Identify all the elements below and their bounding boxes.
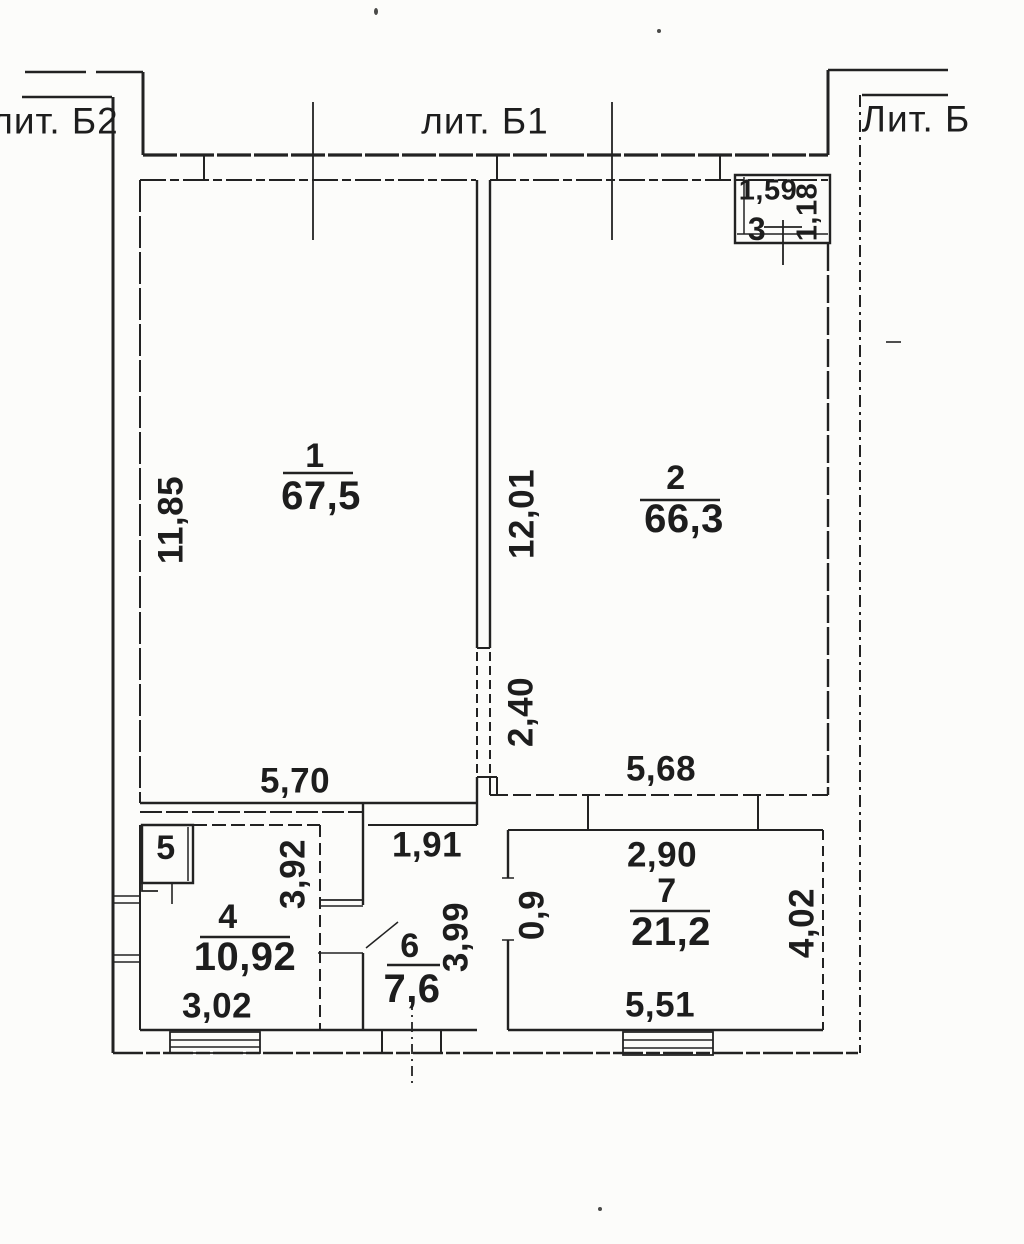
steps-right xyxy=(623,1032,713,1055)
room1-bottom-wall xyxy=(140,803,477,825)
dim-room4-height: 3,92 xyxy=(276,839,311,909)
left-wall-inner xyxy=(113,180,140,1030)
room4-area: 10,92 xyxy=(194,937,297,977)
dim-room7-top: 2,90 xyxy=(627,838,697,873)
label-lit-b: Лит. Б xyxy=(862,101,971,138)
dim-room2-width: 5,68 xyxy=(626,752,696,787)
dim-room2-lower: 2,40 xyxy=(504,677,539,747)
dim-room6-width: 1,91 xyxy=(392,828,462,863)
scan-speckle xyxy=(657,29,661,33)
dim-room1-width: 5,70 xyxy=(260,764,330,799)
room2-area: 66,3 xyxy=(644,499,724,539)
divider-room1-room2 xyxy=(477,180,497,825)
room1-area: 67,5 xyxy=(281,476,361,516)
room6-number: 6 xyxy=(400,929,419,963)
dim-room1-height: 11,85 xyxy=(154,476,189,564)
dim-room7-bottom: 5,51 xyxy=(625,988,695,1023)
room5-number: 5 xyxy=(156,831,175,865)
dim-room4-width: 3,02 xyxy=(182,989,252,1024)
dim-room3-height: 1,18 xyxy=(794,183,823,241)
dim-room3-width: 1,59 xyxy=(739,177,797,206)
dim-room2-height: 12,01 xyxy=(505,469,540,559)
room3-number: 3 xyxy=(748,213,766,245)
steps-left xyxy=(170,1032,260,1053)
divider-room2-room7 xyxy=(490,795,828,830)
dim-room7-right: 4,02 xyxy=(785,888,820,958)
label-lit-b2: лит. Б2 xyxy=(0,103,119,140)
room4-number: 4 xyxy=(218,900,237,934)
room6-area: 7,6 xyxy=(383,969,440,1009)
room7-number: 7 xyxy=(657,874,676,908)
room1-number: 1 xyxy=(305,439,324,473)
top-wall-inner xyxy=(140,155,828,180)
dim-room7-left: 0,9 xyxy=(515,890,550,940)
dim-room6-height: 3,99 xyxy=(439,902,474,972)
label-lit-b1: лит. Б1 xyxy=(421,103,549,140)
room2-number: 2 xyxy=(666,461,685,495)
scan-speckle xyxy=(374,8,378,15)
floor-plan-scan: лит. Б2 лит. Б1 Лит. Б 1 67,5 11,85 5,70… xyxy=(0,0,1024,1244)
scan-speckle xyxy=(598,1207,602,1211)
floorplan-walls xyxy=(0,0,1024,1244)
room7-area: 21,2 xyxy=(631,912,711,952)
building-b-walls xyxy=(828,70,948,1053)
